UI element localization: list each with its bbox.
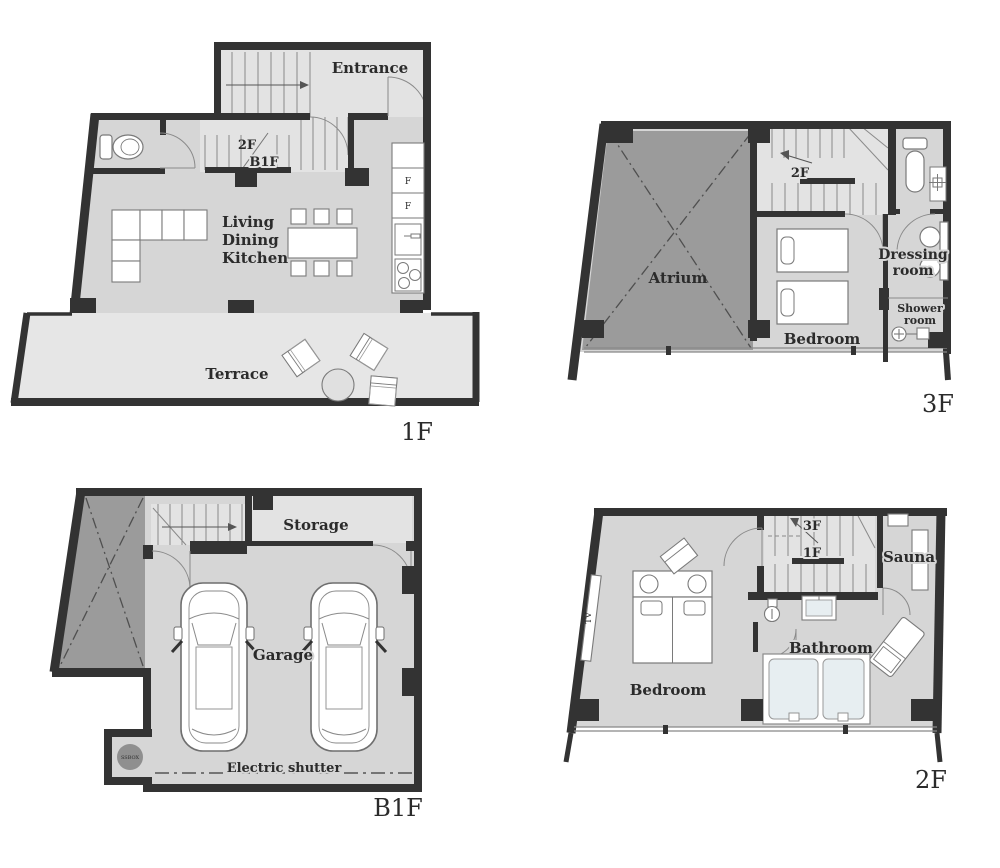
wall — [946, 352, 948, 380]
stair-label-down: 1F — [803, 546, 822, 561]
bedroom-3f: Bedroom — [777, 229, 860, 348]
column — [879, 288, 889, 310]
wall — [52, 668, 150, 677]
window-mullion — [666, 346, 671, 355]
room-label-sauna: Sauna — [883, 548, 935, 566]
floor-plan-b1f: SSBOX Storage Garage Electric shutter B1… — [52, 488, 423, 822]
wall — [214, 42, 221, 117]
floor-label-3f: 3F — [922, 390, 954, 418]
fridge-label: F — [405, 177, 411, 187]
tv-label: TV — [584, 611, 594, 624]
wall — [937, 511, 941, 733]
sauna-bench — [888, 514, 908, 526]
wall — [76, 488, 422, 496]
terrace-floor — [14, 313, 476, 402]
column — [605, 127, 633, 143]
ssbox-alcove: SSBOX — [104, 729, 152, 785]
stair-label-up: 2F — [238, 138, 257, 153]
column — [911, 699, 935, 721]
room-label-atrium: Atrium — [648, 269, 708, 287]
wall — [756, 211, 845, 217]
floor-plans-page: 2F B1F Entrance — [0, 0, 1000, 868]
wall — [348, 113, 354, 172]
double-bed — [633, 571, 712, 663]
dining-table-set — [288, 209, 357, 276]
sink-icon — [395, 224, 421, 255]
atrium-void — [582, 131, 753, 350]
column — [748, 320, 770, 338]
freezer-label: F — [405, 202, 411, 212]
room-label-shower-2: room — [904, 314, 936, 327]
room-label-garage: Garage — [253, 646, 313, 664]
room-label-bedroom-3f: Bedroom — [784, 330, 861, 348]
column — [345, 168, 369, 186]
column — [928, 332, 948, 348]
room-label-bedroom-2f: Bedroom — [630, 681, 707, 699]
room-label-dressing-1: Dressing — [878, 247, 948, 263]
floor-label-1f: 1F — [401, 418, 433, 446]
floor-plan-2f: 3F 1F Sauna — [566, 508, 947, 794]
bathtub-unit — [763, 654, 870, 724]
room-label-dressing-2: room — [893, 263, 934, 279]
column — [402, 668, 414, 696]
floor-plan-1f: 2F B1F Entrance — [11, 42, 479, 446]
floor-plans-canvas: 2F B1F Entrance — [0, 0, 1000, 868]
column — [575, 699, 599, 721]
column — [582, 320, 604, 338]
wall — [143, 545, 153, 559]
stair-floor-b1f — [151, 504, 247, 545]
wall — [888, 127, 896, 215]
column — [741, 699, 763, 721]
wall — [750, 129, 757, 341]
wall — [937, 733, 940, 762]
floor-label-2f: 2F — [915, 766, 947, 794]
wall — [91, 113, 221, 120]
room-label-living: Living — [222, 213, 275, 231]
washbasin-icon — [929, 167, 946, 201]
window-mullion — [663, 725, 668, 734]
stair-label-up: 3F — [803, 519, 822, 534]
column — [235, 170, 257, 187]
car-2 — [304, 583, 384, 751]
stair-label-down: B1F — [249, 155, 279, 170]
terrace-table — [322, 369, 354, 401]
electric-shutter-label: Electric shutter — [227, 761, 342, 776]
wall — [753, 622, 758, 652]
stove-icon — [395, 259, 421, 291]
column — [253, 492, 273, 510]
wall — [143, 668, 151, 737]
room-label-dining: Dining — [222, 231, 279, 249]
stair-hall-floor-3f — [756, 127, 888, 215]
wall — [218, 113, 310, 120]
dining-table — [288, 228, 357, 258]
window-mullion — [843, 725, 848, 734]
vanity-icon — [802, 596, 836, 620]
column — [402, 566, 414, 594]
column — [406, 541, 416, 551]
floor-label-b1f: B1F — [373, 794, 423, 822]
room-label-entrance: Entrance — [332, 59, 408, 77]
wall — [214, 42, 431, 50]
wall — [757, 508, 764, 530]
wall — [190, 541, 247, 554]
wall — [414, 488, 422, 792]
kitchen-counter: F F — [392, 143, 424, 293]
room-label-kitchen: Kitchen — [222, 249, 288, 267]
toilet-icon — [100, 135, 143, 159]
room-label-terrace: Terrace — [205, 365, 268, 383]
car-1 — [174, 583, 254, 751]
wall — [245, 496, 252, 545]
floor-plan-3f: Atrium 2F — [572, 121, 954, 418]
ssbox-label: SSBOX — [121, 755, 140, 761]
wall — [566, 733, 571, 762]
wall — [601, 121, 951, 129]
stair-label-down: 2F — [791, 166, 810, 181]
wall — [143, 784, 422, 792]
wall — [247, 541, 373, 546]
room-label-storage: Storage — [283, 516, 348, 534]
toilet-icon — [903, 138, 927, 192]
